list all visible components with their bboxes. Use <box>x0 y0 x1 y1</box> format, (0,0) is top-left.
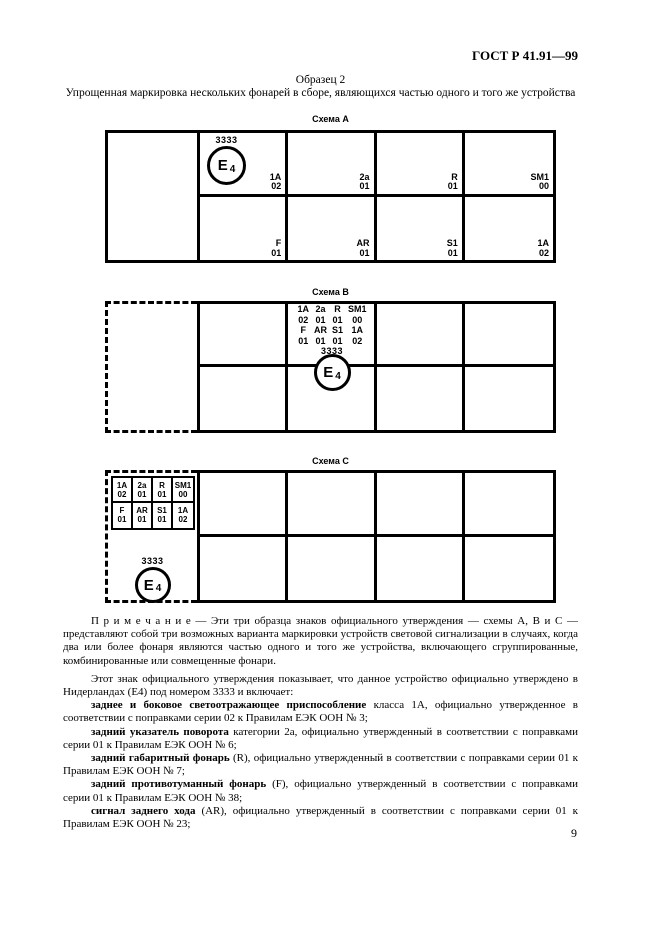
mark-code: S1 <box>332 325 343 336</box>
schema-c-cell-r2c1 <box>200 537 288 601</box>
country-code: 4 <box>230 165 236 175</box>
approval-mark-b-codes: 1A 2a R SM1 02 01 01 00 F AR S1 1A 01 01… <box>297 304 366 346</box>
schema-b-left-cell <box>105 301 197 433</box>
cell-label: SM1 00 <box>530 173 549 192</box>
e-letter: E <box>218 158 228 173</box>
lamp-item-5-name: сигнал заднего хода <box>91 805 195 817</box>
note-paragraph: П р и м е ч а н и е — Эти три образца зн… <box>63 615 578 668</box>
title-block: Образец 2 Упрощенная маркировка нескольк… <box>63 74 578 99</box>
schema-c-cell-r2c2 <box>288 537 376 601</box>
mini-cell: SM1 00 <box>173 478 193 503</box>
mini-cell: R 01 <box>153 478 173 503</box>
mark-code: F <box>300 325 306 336</box>
cell-number: 01 <box>359 182 369 192</box>
schema-c-left-cell: 1A 02 2a 01 R 01 SM1 00 F 01 <box>105 470 197 603</box>
cell-label: 1A 02 <box>537 239 549 258</box>
mark-code: 02 <box>298 315 308 326</box>
mini-cell: S1 01 <box>153 503 173 528</box>
lamp-item-2: задний указатель поворота категории 2а, … <box>63 726 578 752</box>
mark-code: 00 <box>352 315 362 326</box>
approval-number: 3333 <box>108 556 197 566</box>
schema-a-cell-r2c4: 1A 02 <box>465 197 553 261</box>
cell-label: R 01 <box>448 173 458 192</box>
document-page: ГОСТ Р 41.91—99 Образец 2 Упрощенная мар… <box>0 0 661 936</box>
schema-a-cell-r1c2: 2a 01 <box>288 133 376 197</box>
lamp-item-1: заднее и боковое светоотражающее приспос… <box>63 699 578 725</box>
e-mark-circle: E 4 <box>207 146 246 185</box>
sample-title: Образец 2 <box>63 74 578 87</box>
mark-code: 1A <box>352 325 364 336</box>
cell-label: S1 01 <box>447 239 458 258</box>
schema-a-title: Схема А <box>105 114 556 124</box>
cell-number: 01 <box>153 515 171 524</box>
approval-mark-b: 1A 2a R SM1 02 01 01 00 F AR S1 1A 01 01… <box>287 304 377 391</box>
cell-number: 02 <box>537 249 549 259</box>
schema-c-cell-r2c3 <box>377 537 465 601</box>
schema-c-grid <box>197 470 556 603</box>
cell-number: 01 <box>133 515 151 524</box>
sample-subtitle: Упрощенная маркировка нескольких фонарей… <box>63 87 578 100</box>
mini-cell: F 01 <box>113 503 133 528</box>
country-code: 4 <box>335 372 341 382</box>
schema-b-title: Схема В <box>105 287 556 297</box>
lamp-item-4: задний противотуманный фонарь (F), офици… <box>63 778 578 804</box>
cell-number: 02 <box>113 490 131 499</box>
intro-paragraph: Этот знак официального утверждения показ… <box>63 673 578 699</box>
mini-cell: 1A 02 <box>113 478 133 503</box>
cell-number: 01 <box>447 249 458 259</box>
schema-a-cell-r2c3: S1 01 <box>377 197 465 261</box>
cell-number: 02 <box>173 515 193 524</box>
schema-a-cell-r1c3: R 01 <box>377 133 465 197</box>
mark-code: 01 <box>332 315 342 326</box>
cell-code: AR <box>133 506 151 515</box>
lamp-item-3: задний габаритный фонарь (R), официально… <box>63 752 578 778</box>
e-mark-circle: E 4 <box>135 567 171 603</box>
lamp-item-4-name: задний противотуманный фонарь <box>91 778 266 790</box>
schema-b-cell-r1c4 <box>465 304 553 367</box>
schema-a-grid: 3333 E 4 1A 02 2a 01 R <box>197 130 556 263</box>
schema-c-table: 1A 02 2a 01 R 01 SM1 00 F 01 <box>105 470 556 603</box>
approval-number: 3333 <box>207 135 246 145</box>
schema-b-table: 1A 2a R SM1 02 01 01 00 F AR S1 1A 01 01… <box>105 301 556 433</box>
schema-a-table: 3333 E 4 1A 02 2a 01 R <box>105 130 556 263</box>
doc-number: ГОСТ Р 41.91—99 <box>472 48 578 64</box>
approval-mark-a: 3333 E 4 <box>207 135 246 185</box>
cell-number: 01 <box>133 490 151 499</box>
cell-code: 1A <box>113 481 131 490</box>
cell-number: 01 <box>153 490 171 499</box>
cell-number: 02 <box>270 182 282 192</box>
schema-b-cell-r2c3 <box>377 367 465 430</box>
schema-a-left-cell <box>105 130 197 263</box>
schema-c-title: Схема С <box>105 456 556 466</box>
cell-label: AR 01 <box>357 239 370 258</box>
lamp-item-3-name: задний габаритный фонарь <box>91 752 230 764</box>
e-mark-circle: E 4 <box>314 354 351 391</box>
cell-code: F <box>113 506 131 515</box>
cell-code: R <box>153 481 171 490</box>
e-letter: E <box>144 578 154 593</box>
schema-c-mini-table: 1A 02 2a 01 R 01 SM1 00 F 01 <box>111 476 195 530</box>
schema-c-cell-r1c2 <box>288 473 376 537</box>
schema-c-cell-r1c4 <box>465 473 553 537</box>
schema-a-cell-r1c1: 3333 E 4 1A 02 <box>200 133 288 197</box>
cell-label: 1A 02 <box>270 173 282 192</box>
cell-number: 01 <box>448 182 458 192</box>
mark-code: 01 <box>315 315 325 326</box>
e-letter: E <box>323 365 333 380</box>
text-block: П р и м е ч а н и е — Эти три образца зн… <box>63 615 578 831</box>
lamp-item-1-name: заднее и боковое светоотражающее приспос… <box>91 699 366 711</box>
mini-cell: 1A 02 <box>173 503 193 528</box>
mini-cell: 2a 01 <box>133 478 153 503</box>
schema-b-cell-r1c1 <box>200 304 288 367</box>
mark-code: R <box>334 304 341 315</box>
schema-c-cell-r2c4 <box>465 537 553 601</box>
approval-mark-c: 3333 E 4 <box>108 556 197 603</box>
schema-c-cell-r1c3 <box>377 473 465 537</box>
mark-code: 01 <box>315 336 325 347</box>
schema-b-cell-r2c1 <box>200 367 288 430</box>
cell-number: 00 <box>173 490 193 499</box>
mark-code: 01 <box>298 336 308 347</box>
page-number: 9 <box>571 826 577 841</box>
mark-code: AR <box>314 325 327 336</box>
cell-number: 01 <box>271 249 281 259</box>
cell-number: 01 <box>357 249 370 259</box>
cell-code: 1A <box>173 506 193 515</box>
cell-label: F 01 <box>271 239 281 258</box>
lamp-item-2-name: задний указатель поворота <box>91 726 229 738</box>
cell-number: 00 <box>530 182 549 192</box>
mark-code: 2a <box>315 304 325 315</box>
cell-label: 2a 01 <box>359 173 369 192</box>
schema-b-cell-r1c3 <box>377 304 465 367</box>
schema-c-cell-r1c1 <box>200 473 288 537</box>
schema-a-cell-r2c2: AR 01 <box>288 197 376 261</box>
lamp-item-5: сигнал заднего хода (AR), официально утв… <box>63 805 578 831</box>
country-code: 4 <box>156 584 162 594</box>
mark-code: SM1 <box>348 304 367 315</box>
cell-code: S1 <box>153 506 171 515</box>
schema-a-cell-r1c4: SM1 00 <box>465 133 553 197</box>
schema-a-cell-r2c1: F 01 <box>200 197 288 261</box>
mark-code: 01 <box>332 336 342 347</box>
mark-code: 02 <box>352 336 362 347</box>
cell-number: 01 <box>113 515 131 524</box>
cell-code: 2a <box>133 481 151 490</box>
mini-cell: AR 01 <box>133 503 153 528</box>
mark-code: 1A <box>297 304 309 315</box>
schema-b-cell-r2c4 <box>465 367 553 430</box>
cell-code: SM1 <box>173 481 193 490</box>
